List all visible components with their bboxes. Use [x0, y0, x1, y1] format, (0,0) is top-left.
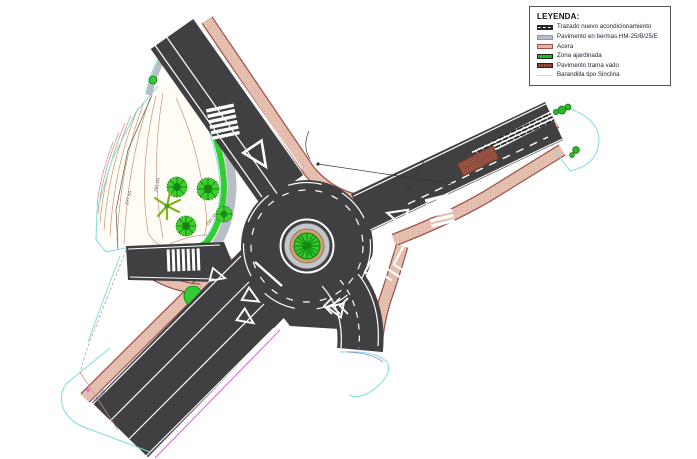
boundary-southeast-end [340, 352, 389, 397]
berm-swatch [537, 35, 553, 40]
railing-swatch [537, 75, 553, 78]
boundary-east-end [556, 106, 599, 171]
tree [197, 178, 219, 200]
legend-box: LEYENDA: Trazado nuevo acondicionamiento… [529, 6, 671, 86]
site-plan-page: 281.00 277.50 280.36 284.28 LEYENDA: Tra… [0, 0, 697, 459]
sidewalk-swatch [537, 44, 553, 49]
legend-item-label: Zona ajardinada [557, 53, 602, 59]
legend-item-label: Acera [557, 44, 573, 50]
road-swatch [537, 25, 553, 30]
legend-title: LEYENDA: [537, 12, 663, 21]
vado-swatch [537, 63, 553, 68]
legend-item-label: Trazado nuevo acondicionamiento [557, 24, 651, 30]
garden-swatch [537, 54, 553, 59]
legend-item-label: Pavimento en bermas HM-25/B/25/E [557, 34, 658, 40]
legend-item-label: Barandilla tipo Sinclina [557, 72, 620, 78]
legend-item-label: Pavimento trama vado [557, 63, 619, 69]
legend-item-acera: Acera [537, 44, 663, 50]
island-tree-icon [295, 234, 320, 259]
garden-spot-north [149, 76, 157, 84]
legend-item-bermas: Pavimento en bermas HM-25/B/25/E [537, 34, 663, 40]
legend-item-trazado: Trazado nuevo acondicionamiento [537, 24, 663, 30]
tree [216, 206, 232, 222]
tree [176, 216, 196, 236]
legend-item-vado: Pavimento trama vado [537, 63, 663, 69]
legend-item-barandilla: Barandilla tipo Sinclina [537, 72, 663, 78]
legend-item-ajardinada: Zona ajardinada [537, 53, 663, 59]
survey-point [86, 388, 89, 391]
